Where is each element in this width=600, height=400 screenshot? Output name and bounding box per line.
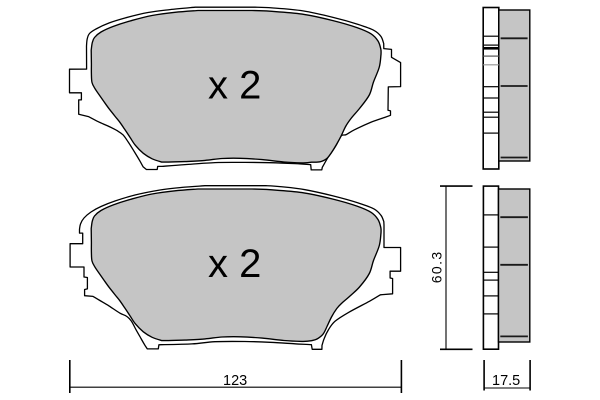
- svg-text:60.3: 60.3: [429, 252, 445, 284]
- svg-text:17.5: 17.5: [492, 373, 520, 389]
- svg-text:x 2: x 2: [208, 242, 261, 286]
- svg-text:x 2: x 2: [208, 64, 261, 108]
- svg-text:123: 123: [223, 373, 247, 389]
